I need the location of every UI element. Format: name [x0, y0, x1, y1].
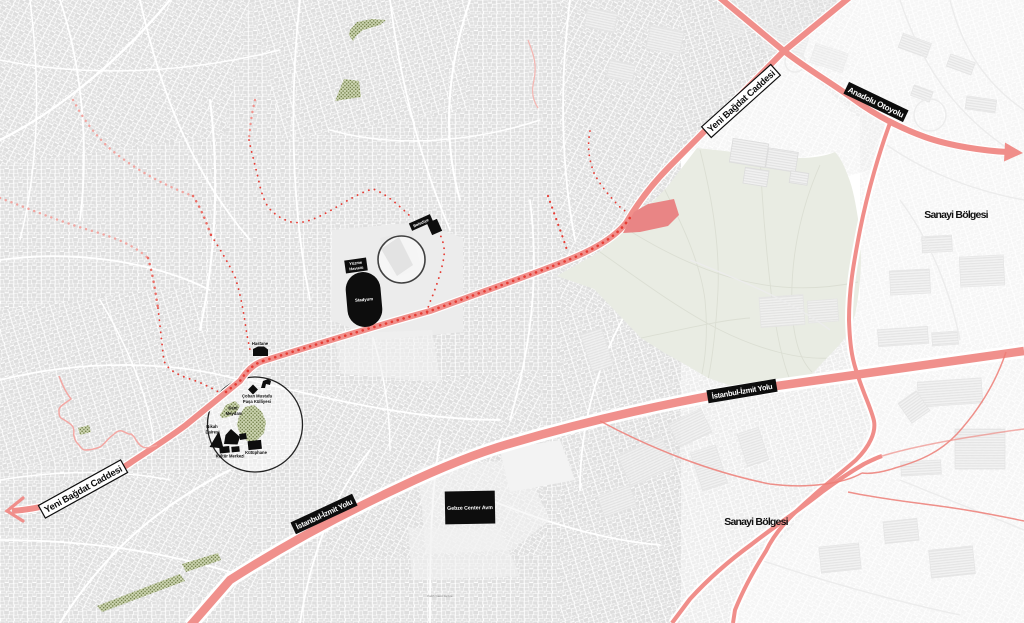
svg-text:Nikah: Nikah — [206, 424, 218, 429]
svg-text:Meydanı: Meydanı — [226, 411, 243, 416]
svg-text:Gebze Center Avm: Gebze Center Avm — [447, 505, 493, 512]
svg-text:Sanayi Bölgesi: Sanayi Bölgesi — [724, 516, 788, 528]
svg-text:Sanayi Bölgesi: Sanayi Bölgesi — [924, 209, 988, 221]
svg-text:Kent: Kent — [228, 406, 238, 411]
svg-text:Paşa Külliyesi: Paşa Külliyesi — [243, 399, 271, 404]
svg-text:Dairesi: Dairesi — [206, 430, 220, 435]
svg-text:Kütüphane: Kütüphane — [245, 450, 268, 455]
svg-text:Hastane: Hastane — [252, 341, 269, 346]
svg-text:Çoban Mustafa: Çoban Mustafa — [242, 394, 273, 399]
svg-text:Fatih Cami Gebze: Fatih Cami Gebze — [427, 594, 453, 598]
svg-text:Kültür Merkezi: Kültür Merkezi — [216, 454, 245, 459]
